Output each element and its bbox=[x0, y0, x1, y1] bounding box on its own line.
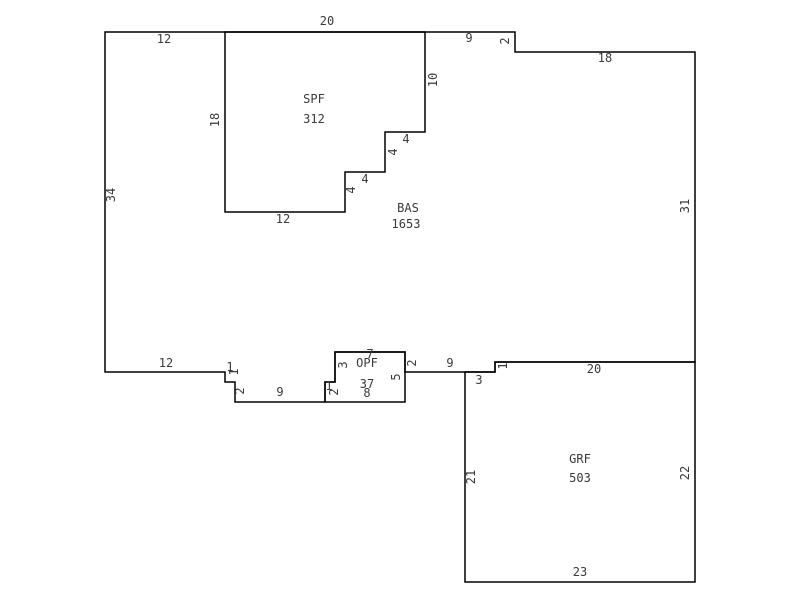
dimension-label: 4 bbox=[402, 133, 409, 145]
dimension-label: 1 bbox=[228, 368, 240, 375]
dimension-label: 3 bbox=[337, 361, 349, 368]
dimension-label: 2 bbox=[234, 387, 246, 394]
room-code-label: GRF bbox=[569, 453, 591, 465]
dimension-label: 18 bbox=[598, 52, 612, 64]
dimension-label: 2 bbox=[499, 37, 511, 44]
dimension-label: 2 bbox=[328, 388, 340, 395]
dimension-label: 34 bbox=[105, 188, 117, 202]
dimension-label: 18 bbox=[209, 113, 221, 127]
floor-plan-sketch: 1220921831341810444412SPF312BAS165312112… bbox=[0, 0, 800, 600]
room-code-label: SPF bbox=[303, 93, 325, 105]
dimension-label: 12 bbox=[276, 213, 290, 225]
dimension-label: 10 bbox=[427, 73, 439, 87]
room-area-label: 1653 bbox=[392, 218, 421, 230]
room-code-label: OPF bbox=[356, 357, 378, 369]
dimension-label: 9 bbox=[465, 32, 472, 44]
dimension-label: 12 bbox=[159, 357, 173, 369]
dimension-label: 20 bbox=[587, 363, 601, 375]
dimension-label: 23 bbox=[573, 566, 587, 578]
dimension-label: 5 bbox=[390, 373, 402, 380]
dimension-label: 1 bbox=[497, 362, 509, 369]
dimension-label: 4 bbox=[345, 186, 357, 193]
spf-outline bbox=[225, 32, 425, 212]
dimension-label: 3 bbox=[475, 374, 482, 386]
dimension-label: 9 bbox=[276, 386, 283, 398]
room-code-label: BAS bbox=[397, 202, 419, 214]
dimension-label: 4 bbox=[387, 148, 399, 155]
dimension-label: 2 bbox=[406, 359, 418, 366]
dimension-label: 9 bbox=[446, 357, 453, 369]
dimension-label: 31 bbox=[679, 199, 691, 213]
dimension-label: 22 bbox=[679, 466, 691, 480]
dimension-label: 8 bbox=[363, 387, 370, 399]
sketch-lines bbox=[0, 0, 800, 600]
dimension-label: 21 bbox=[465, 470, 477, 484]
dimension-label: 12 bbox=[157, 33, 171, 45]
dimension-label: 4 bbox=[361, 173, 368, 185]
room-area-label: 503 bbox=[569, 472, 591, 484]
room-area-label: 312 bbox=[303, 113, 325, 125]
dimension-label: 20 bbox=[320, 15, 334, 27]
